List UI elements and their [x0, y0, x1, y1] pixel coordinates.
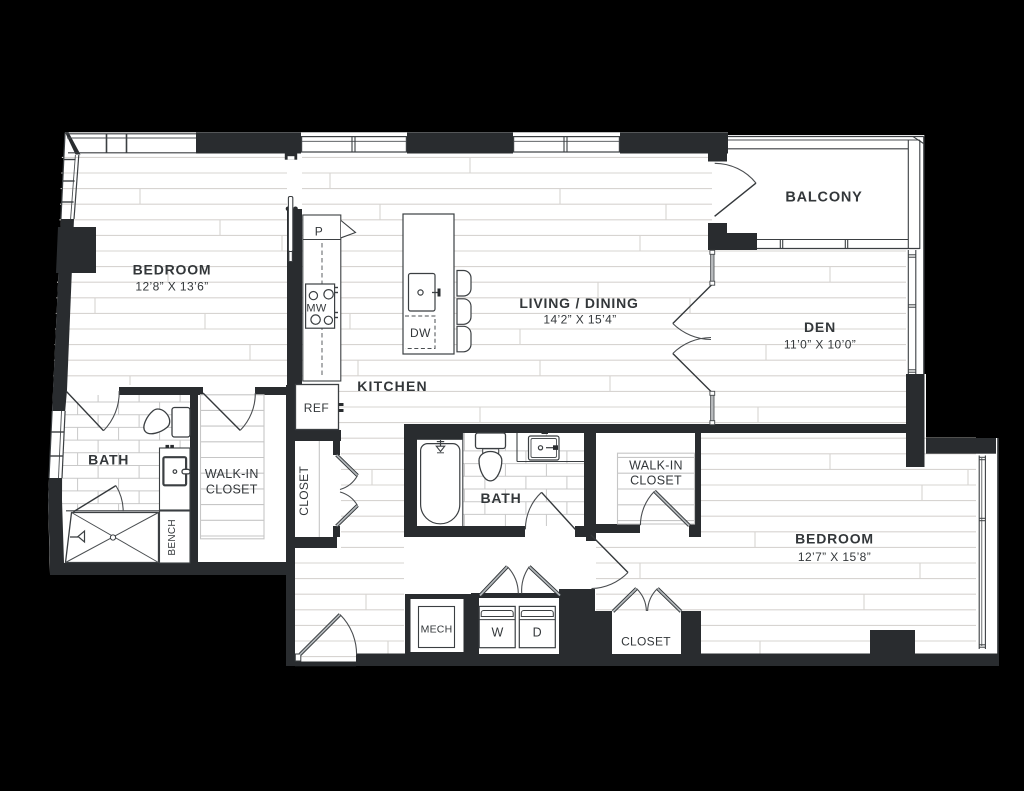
svg-text:DW: DW: [410, 326, 431, 340]
svg-text:MW: MW: [306, 303, 326, 315]
svg-text:LIVING / DINING: LIVING / DINING: [519, 295, 638, 311]
svg-text:WALK-IN: WALK-IN: [629, 459, 683, 473]
svg-text:12’7” X 15’8”: 12’7” X 15’8”: [798, 550, 871, 564]
svg-text:CLOSET: CLOSET: [206, 483, 258, 497]
svg-text:WALK-IN: WALK-IN: [205, 467, 259, 481]
svg-text:11’0” X 10’0”: 11’0” X 10’0”: [784, 338, 856, 352]
svg-text:D: D: [533, 626, 542, 640]
svg-text:BEDROOM: BEDROOM: [133, 262, 212, 278]
svg-text:MECH: MECH: [421, 624, 453, 636]
svg-text:12’8” X 13’6”: 12’8” X 13’6”: [135, 280, 208, 294]
svg-text:BENCH: BENCH: [167, 519, 178, 556]
svg-text:CLOSET: CLOSET: [621, 634, 671, 648]
svg-text:KITCHEN: KITCHEN: [357, 378, 428, 394]
svg-text:CLOSET: CLOSET: [297, 466, 311, 516]
svg-text:BATH: BATH: [480, 490, 521, 506]
svg-text:DEN: DEN: [804, 319, 836, 335]
svg-text:BATH: BATH: [88, 452, 129, 468]
svg-text:CLOSET: CLOSET: [630, 474, 682, 488]
svg-text:W: W: [491, 626, 503, 640]
svg-text:BEDROOM: BEDROOM: [795, 531, 874, 547]
svg-text:P: P: [315, 225, 324, 239]
svg-text:BALCONY: BALCONY: [785, 190, 862, 206]
svg-text:14’2” X 15’4”: 14’2” X 15’4”: [543, 313, 616, 327]
svg-text:REF: REF: [304, 401, 330, 415]
